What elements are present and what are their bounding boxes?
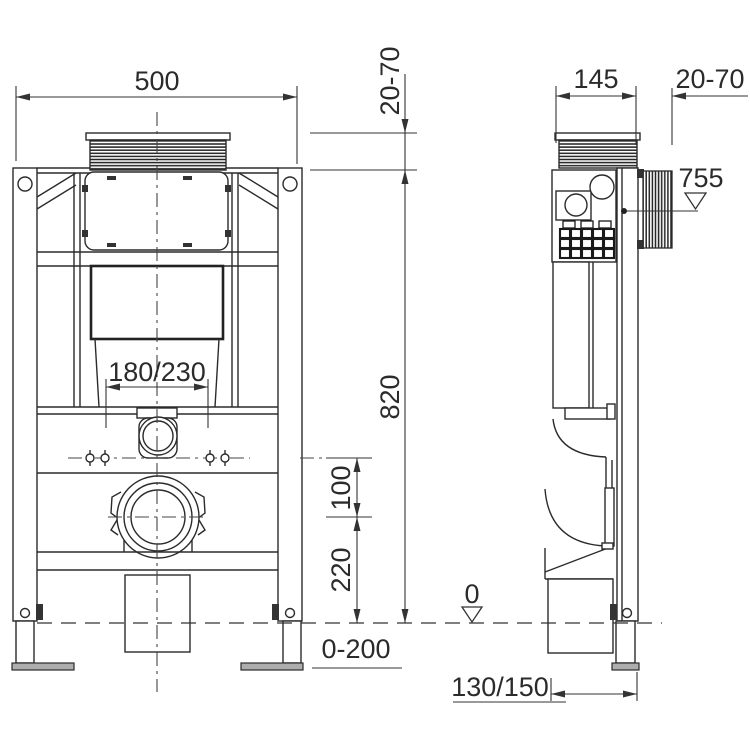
dim-flush-bend-spacing-label: 180/230 — [108, 357, 206, 387]
side-foot-plate — [612, 663, 639, 670]
front-right-rail — [278, 168, 302, 621]
dim-frame-depth-label: 145 — [573, 64, 618, 94]
left-foot-plate — [12, 663, 74, 670]
datum-floor-label: 0 — [464, 579, 479, 609]
cover-lip — [86, 133, 230, 140]
datum-actuator-height-label: 755 — [678, 163, 723, 193]
right-foot-plate — [241, 663, 303, 670]
dim-wall-clearance-label: 20-70 — [675, 64, 744, 94]
dim-inlet-to-drain-label: 100 — [326, 465, 356, 510]
side-connection-hole-2 — [565, 194, 587, 216]
side-drain-box — [548, 579, 613, 653]
technical-drawing-page: 500 20-70 820 180/230 100 220 0-200 0 — [0, 0, 750, 750]
side-protection-cover-hatch — [559, 140, 637, 168]
front-left-foot — [16, 621, 34, 663]
front-left-rail — [13, 168, 37, 621]
mounting-rack-grid — [560, 221, 614, 258]
dim-drain-center-height-label: 220 — [326, 547, 356, 592]
dim-front-width-label: 500 — [134, 66, 179, 96]
side-cover-lip — [555, 133, 640, 140]
actuator-axis-dot — [621, 208, 627, 214]
side-connection-hole-1 — [590, 175, 614, 199]
actuator-sleeve-hatch — [643, 171, 672, 248]
side-cistern — [553, 262, 589, 408]
front-right-foot — [283, 621, 301, 663]
dim-frame-height-label: 820 — [375, 374, 405, 419]
dim-cover-depth-label: 20-70 — [375, 46, 405, 115]
outlet-connector — [605, 488, 614, 546]
drain-pipe-box — [125, 575, 190, 652]
side-front-rail — [617, 168, 638, 621]
dim-drain-offset-label: 130/150 — [451, 672, 549, 702]
dim-foot-extension-label: 0-200 — [321, 634, 390, 664]
protection-cover-hatch — [90, 140, 226, 170]
side-foot — [616, 621, 635, 663]
installation-frame-drawing: 500 20-70 820 180/230 100 220 0-200 0 — [0, 0, 750, 750]
cistern-access-panel — [85, 172, 228, 250]
